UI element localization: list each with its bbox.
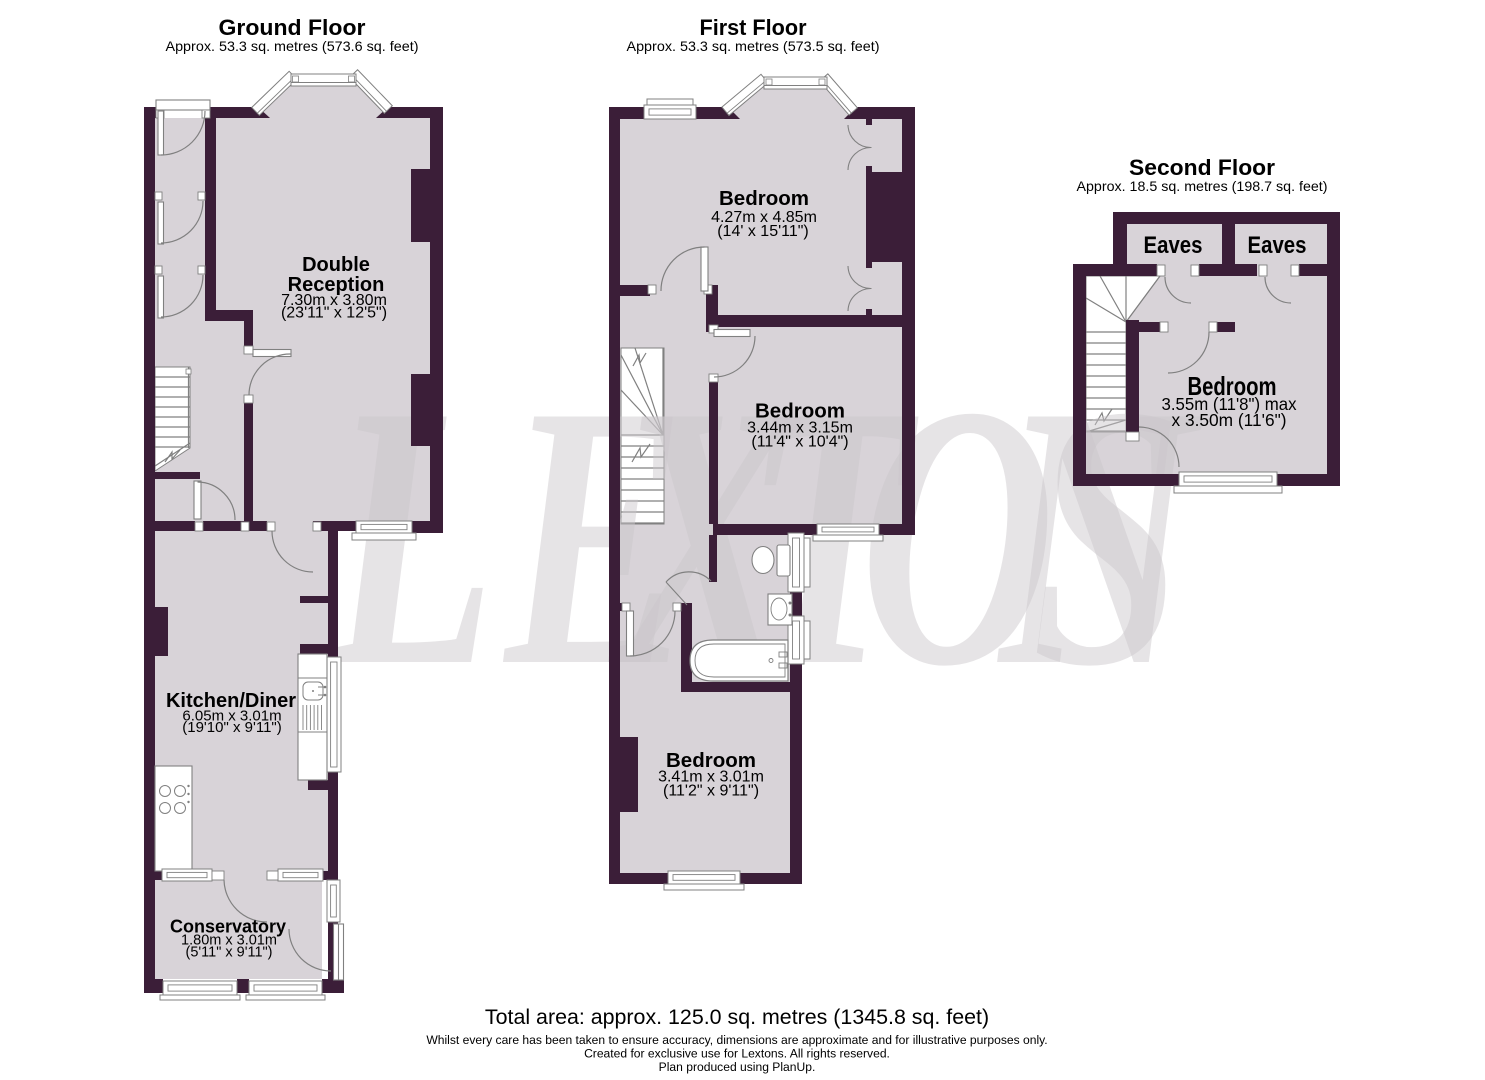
svg-text:Total area: approx. 125.0 sq.: Total area: approx. 125.0 sq. metres (13… (485, 1005, 989, 1029)
svg-text:(5'11" x 9'11"): (5'11" x 9'11") (185, 945, 272, 961)
svg-text:Bedroom: Bedroom (719, 187, 809, 210)
svg-text:(19'10" x 9'11"): (19'10" x 9'11") (182, 719, 282, 736)
svg-text:Double: Double (302, 254, 370, 276)
svg-text:(11'2" x 9'11"): (11'2" x 9'11") (663, 783, 759, 800)
svg-text:Second Floor: Second Floor (1129, 155, 1275, 180)
svg-text:Created for exclusive use for: Created for exclusive use for Lextons. A… (584, 1047, 890, 1061)
svg-text:(23'11" x 12'5"): (23'11" x 12'5") (281, 305, 387, 322)
svg-text:(14' x 15'11"): (14' x 15'11") (717, 223, 809, 240)
svg-text:Whilst every care has been tak: Whilst every care has been taken to ensu… (426, 1033, 1047, 1047)
svg-text:Eaves: Eaves (1144, 232, 1203, 259)
svg-text:Ground Floor: Ground Floor (219, 15, 366, 40)
svg-text:x 3.50m (11'6"): x 3.50m (11'6") (1172, 410, 1287, 430)
svg-text:(11'4" x 10'4"): (11'4" x 10'4") (751, 434, 848, 451)
svg-text:Approx. 53.3 sq. metres (573.5: Approx. 53.3 sq. metres (573.5 sq. feet) (627, 39, 880, 54)
svg-text:Eaves: Eaves (1248, 232, 1307, 259)
svg-text:Plan produced using PlanUp.: Plan produced using PlanUp. (659, 1060, 816, 1074)
svg-text:First Floor: First Floor (700, 15, 807, 40)
svg-text:Approx. 18.5 sq. metres (198.7: Approx. 18.5 sq. metres (198.7 sq. feet) (1077, 179, 1328, 194)
svg-text:Approx. 53.3 sq. metres (573.6: Approx. 53.3 sq. metres (573.6 sq. feet) (166, 39, 419, 54)
